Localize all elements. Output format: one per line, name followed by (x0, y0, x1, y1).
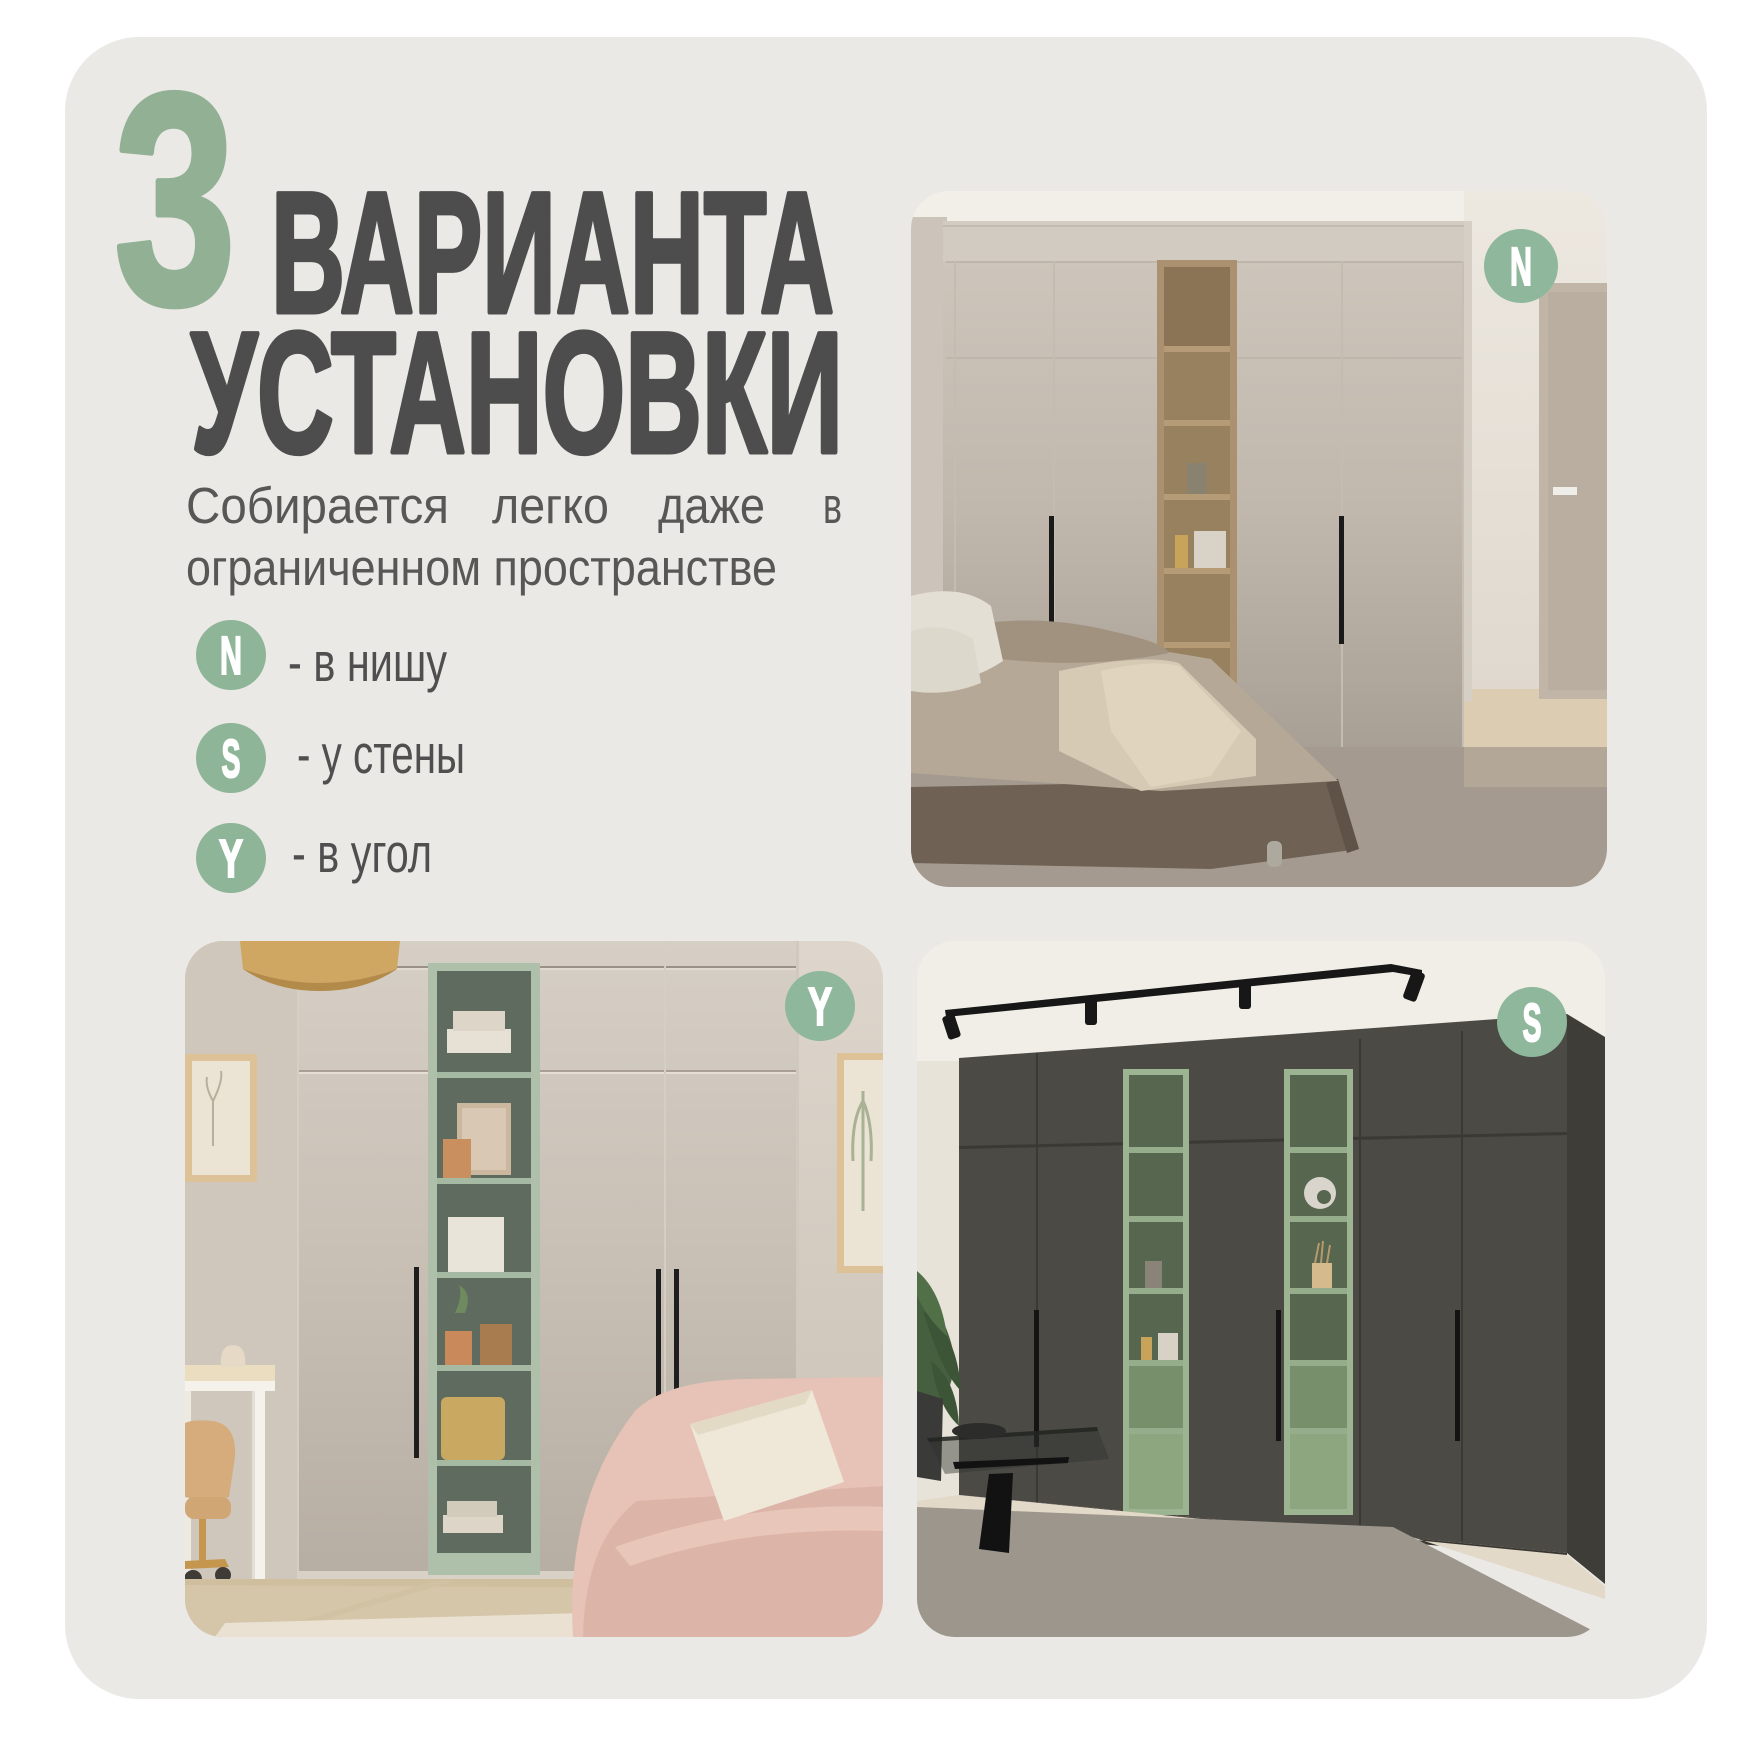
svg-text:N: N (220, 626, 242, 686)
svg-text:- в угол: - в угол (292, 822, 432, 884)
svg-text:Собирается: Собирается (186, 477, 449, 534)
svg-text:даже: даже (658, 477, 765, 534)
svg-text:ограниченном пространстве: ограниченном пространстве (186, 539, 777, 596)
svg-text:Y: Y (808, 977, 832, 1037)
svg-text:S: S (222, 729, 241, 789)
svg-text:S: S (1523, 993, 1542, 1053)
svg-text:УСТАНОВКИ: УСТАНОВКИ (191, 297, 843, 489)
svg-text:Y: Y (219, 829, 243, 889)
svg-text:N: N (1510, 237, 1532, 297)
svg-text:в: в (823, 477, 842, 534)
svg-text:- в нишу: - в нишу (288, 631, 447, 693)
svg-text:- у стены: - у стены (297, 723, 465, 785)
svg-text:легко: легко (492, 477, 609, 534)
